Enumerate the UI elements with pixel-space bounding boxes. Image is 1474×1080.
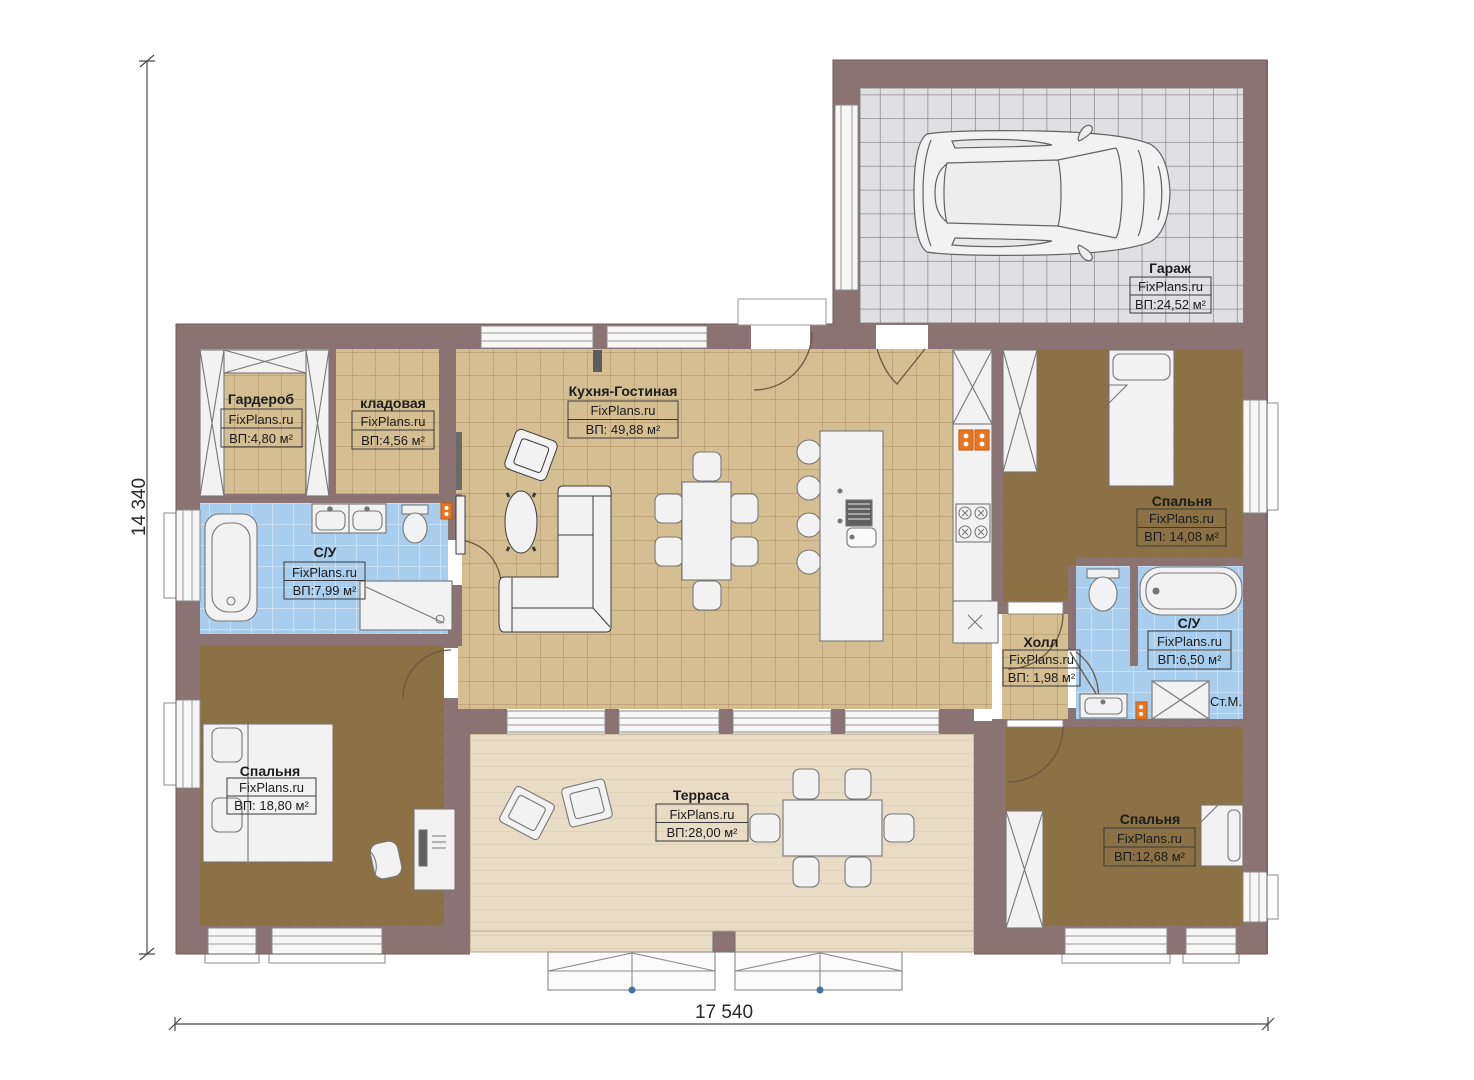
svg-text:FixPlans.ru: FixPlans.ru: [1138, 279, 1203, 294]
svg-text:Терраса: Терраса: [673, 787, 729, 803]
svg-text:FixPlans.ru: FixPlans.ru: [1009, 652, 1074, 667]
svg-text:С/У: С/У: [1178, 615, 1201, 631]
svg-text:FixPlans.ru: FixPlans.ru: [228, 412, 293, 427]
svg-text:Гардероб: Гардероб: [228, 391, 295, 407]
svg-text:Спальня: Спальня: [240, 763, 300, 779]
svg-text:Спальня: Спальня: [1120, 811, 1180, 827]
svg-text:14 340: 14 340: [129, 478, 150, 536]
svg-text:ВП:4,56 м²: ВП:4,56 м²: [361, 433, 425, 448]
svg-text:ВП:6,50 м²: ВП:6,50 м²: [1158, 652, 1222, 667]
svg-text:Гараж: Гараж: [1149, 260, 1192, 276]
svg-text:кладовая: кладовая: [360, 395, 426, 411]
svg-text:Кухня-Гостиная: Кухня-Гостиная: [569, 383, 678, 399]
svg-text:FixPlans.ru: FixPlans.ru: [1149, 511, 1214, 526]
svg-text:ВП: 18,80 м²: ВП: 18,80 м²: [234, 798, 309, 813]
svg-text:ВП:12,68 м²: ВП:12,68 м²: [1114, 849, 1186, 864]
svg-text:FixPlans.ru: FixPlans.ru: [669, 807, 734, 822]
svg-text:FixPlans.ru: FixPlans.ru: [590, 403, 655, 418]
svg-text:ВП: 14,08 м²: ВП: 14,08 м²: [1144, 529, 1219, 544]
svg-text:ВП:24,52 м²: ВП:24,52 м²: [1135, 297, 1207, 312]
svg-text:ВП: 1,98 м²: ВП: 1,98 м²: [1008, 670, 1076, 685]
svg-text:FixPlans.ru: FixPlans.ru: [239, 780, 304, 795]
svg-text:FixPlans.ru: FixPlans.ru: [292, 565, 357, 580]
svg-text:С/У: С/У: [314, 544, 337, 560]
svg-text:ВП:7,99 м²: ВП:7,99 м²: [293, 583, 357, 598]
svg-text:FixPlans.ru: FixPlans.ru: [360, 414, 425, 429]
svg-text:ВП:4,80 м²: ВП:4,80 м²: [229, 431, 293, 446]
svg-text:ВП: 49,88 м²: ВП: 49,88 м²: [586, 422, 661, 437]
svg-text:17 540: 17 540: [695, 1002, 753, 1023]
svg-text:ВП:28,00 м²: ВП:28,00 м²: [666, 825, 738, 840]
svg-text:Холл: Холл: [1023, 634, 1058, 650]
svg-text:Спальня: Спальня: [1152, 493, 1212, 509]
svg-text:Ст.М.: Ст.М.: [1210, 694, 1242, 709]
svg-text:FixPlans.ru: FixPlans.ru: [1117, 831, 1182, 846]
svg-text:FixPlans.ru: FixPlans.ru: [1157, 634, 1222, 649]
